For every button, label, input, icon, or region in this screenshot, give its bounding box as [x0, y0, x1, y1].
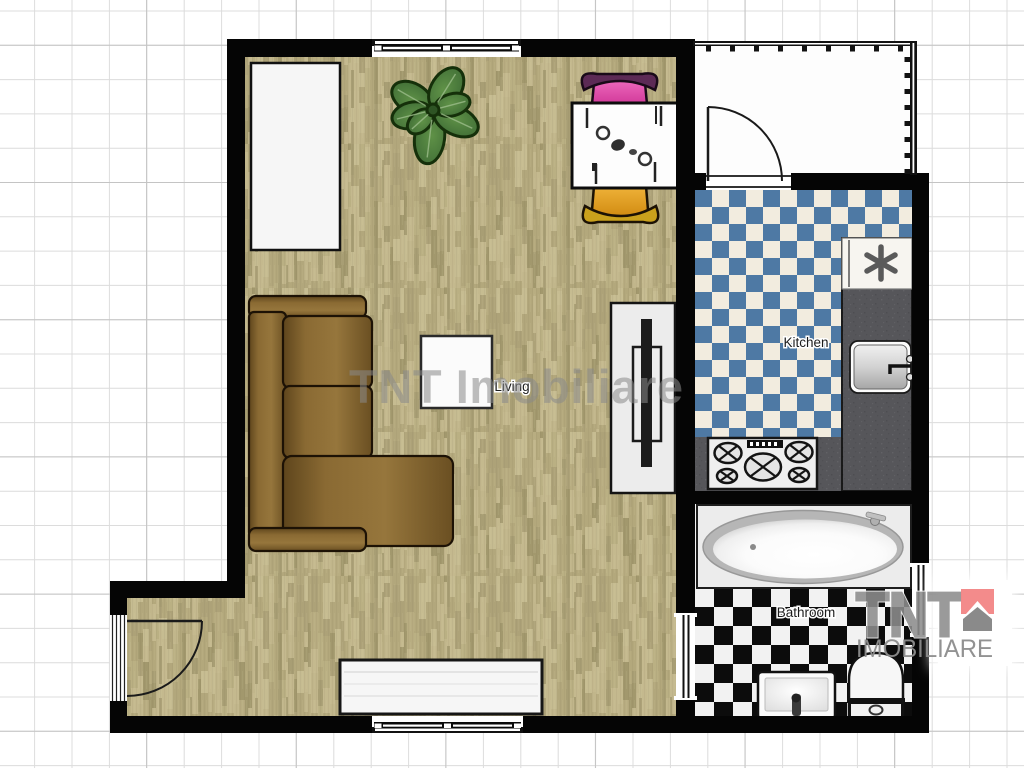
svg-text:Kitchen: Kitchen [783, 335, 828, 350]
svg-text:IMOBILIARE: IMOBILIARE [856, 635, 993, 663]
svg-text:TNT Imobiliare: TNT Imobiliare [349, 360, 683, 413]
svg-text:Bathroom: Bathroom [777, 605, 836, 620]
